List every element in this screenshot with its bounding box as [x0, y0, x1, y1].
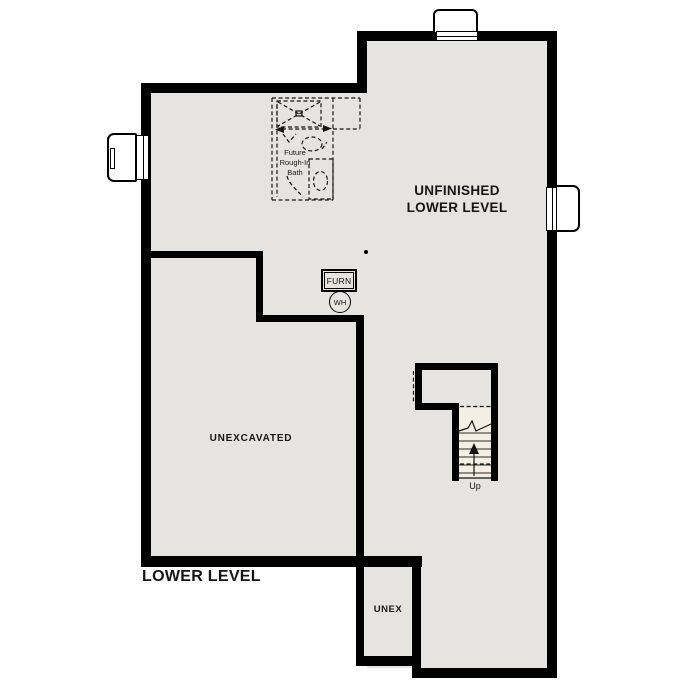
- wall-bottom-left: [141, 556, 422, 567]
- furnace-box: FURN: [321, 269, 357, 292]
- floor-drain-dot: [364, 250, 368, 254]
- room-label-unex: UNEX: [364, 604, 412, 615]
- room-label-unfinished-lower-level: UNFINISHED LOWER LEVEL: [387, 182, 527, 216]
- floor-left-section: [151, 93, 367, 556]
- right-window-well: [555, 185, 580, 232]
- left-window-handle: [110, 148, 115, 169]
- room-label-line1: UNFINISHED: [387, 182, 527, 199]
- room-label-unexcavated: UNEXCAVATED: [190, 433, 312, 444]
- wall-unexcavated-step-lower: [256, 315, 363, 322]
- top-window-mullion: [437, 36, 477, 37]
- wall-right: [547, 31, 557, 678]
- future-bath-line3: Bath: [263, 168, 327, 178]
- wall-stair-top: [415, 363, 498, 370]
- right-window-mullion: [552, 188, 553, 230]
- wall-unex-left: [356, 315, 364, 666]
- wall-unexcavated-step-vert: [256, 251, 263, 322]
- room-label-line2: LOWER LEVEL: [387, 199, 527, 216]
- wall-unex-right: [412, 556, 421, 678]
- wall-unexcavated-step-top: [146, 251, 263, 258]
- left-window-mullion: [143, 136, 144, 179]
- water-heater-circle: WH: [329, 291, 351, 313]
- furnace-label: FURN: [324, 272, 354, 289]
- wall-stair-right: [491, 363, 498, 481]
- floor-plan: FURN WH: [0, 0, 687, 687]
- wall-bottom-right: [412, 668, 557, 678]
- top-window: [436, 31, 478, 41]
- left-window: [136, 135, 149, 180]
- future-bath-label: Future Rough-In Bath: [263, 148, 327, 177]
- future-bath-line1: Future: [263, 148, 327, 158]
- wall-stair-mid-v: [452, 403, 459, 481]
- plan-title: LOWER LEVEL: [142, 568, 261, 586]
- right-window: [546, 187, 557, 231]
- wall-left-top: [141, 83, 367, 93]
- future-bath-line2: Rough-In: [263, 158, 327, 168]
- stairs-up-label: Up: [459, 481, 491, 491]
